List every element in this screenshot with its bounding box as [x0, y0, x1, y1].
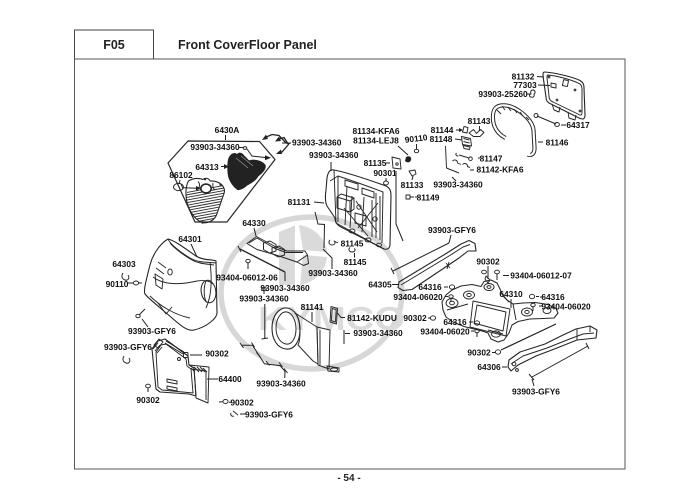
svg-text:93903-34360: 93903-34360 — [309, 150, 359, 160]
svg-text:93903-GFY6: 93903-GFY6 — [104, 342, 152, 352]
svg-text:81134-KFA6: 81134-KFA6 — [352, 126, 399, 136]
svg-text:93903-34360: 93903-34360 — [433, 180, 483, 190]
svg-text:64317: 64317 — [566, 120, 590, 130]
svg-text:93903-GFY6: 93903-GFY6 — [245, 410, 293, 420]
svg-text:93903-34360: 93903-34360 — [190, 142, 240, 152]
svg-text:64310: 64310 — [499, 289, 523, 299]
svg-text:93903-34360: 93903-34360 — [256, 379, 306, 389]
svg-text:81149: 81149 — [417, 193, 440, 203]
svg-text:81145: 81145 — [344, 257, 367, 267]
svg-text:86102: 86102 — [169, 170, 193, 180]
svg-text:90302: 90302 — [476, 257, 500, 267]
svg-text:Front CoverFloor Panel: Front CoverFloor Panel — [178, 38, 317, 52]
svg-text:F05: F05 — [103, 38, 125, 52]
svg-text:93404-06012-07: 93404-06012-07 — [510, 271, 572, 281]
svg-text:81134-LEJ8: 81134-LEJ8 — [353, 136, 399, 146]
svg-text:81147: 81147 — [480, 154, 503, 164]
svg-text:93903-GFY6: 93903-GFY6 — [428, 225, 476, 235]
svg-text:- 54 -: - 54 - — [337, 473, 360, 484]
svg-text:64301: 64301 — [178, 234, 202, 244]
svg-text:64316: 64316 — [443, 317, 467, 327]
svg-text:90302: 90302 — [205, 349, 229, 359]
svg-text:64316: 64316 — [541, 292, 565, 302]
svg-text:6430A: 6430A — [215, 125, 240, 135]
svg-text:81141: 81141 — [301, 302, 324, 312]
svg-text:64330: 64330 — [242, 218, 266, 228]
svg-text:93903-GFY6: 93903-GFY6 — [128, 326, 176, 336]
svg-text:81148: 81148 — [430, 134, 453, 144]
svg-text:93404-06012-06: 93404-06012-06 — [216, 273, 278, 283]
svg-text:90302: 90302 — [467, 348, 491, 358]
svg-text:64400: 64400 — [218, 374, 242, 384]
svg-text:81143: 81143 — [468, 116, 491, 126]
svg-text:90301: 90301 — [373, 168, 397, 178]
svg-text:81131: 81131 — [288, 197, 311, 207]
svg-text:93404-06020: 93404-06020 — [393, 292, 443, 302]
svg-text:81146: 81146 — [546, 138, 569, 148]
svg-text:81142-KFA6: 81142-KFA6 — [476, 165, 523, 175]
svg-text:93903-34360: 93903-34360 — [260, 283, 310, 293]
svg-text:81135: 81135 — [364, 158, 387, 168]
svg-text:64316: 64316 — [418, 282, 442, 292]
svg-text:93404-06020: 93404-06020 — [420, 327, 470, 337]
svg-text:93903-25260: 93903-25260 — [478, 89, 528, 99]
svg-text:64306: 64306 — [477, 362, 501, 372]
svg-text:64313: 64313 — [195, 162, 219, 172]
svg-text:64305: 64305 — [368, 280, 392, 290]
svg-text:93903-GFY6: 93903-GFY6 — [512, 387, 560, 397]
svg-text:93903-34360: 93903-34360 — [239, 294, 289, 304]
svg-text:81133: 81133 — [401, 180, 424, 190]
svg-text:81145: 81145 — [341, 239, 364, 249]
svg-text:93404-06020: 93404-06020 — [541, 302, 591, 312]
svg-text:90302: 90302 — [230, 398, 254, 408]
svg-text:90302: 90302 — [403, 313, 427, 323]
svg-text:90302: 90302 — [136, 395, 160, 405]
svg-text:93903-34360: 93903-34360 — [353, 328, 403, 338]
svg-text:90110: 90110 — [106, 279, 129, 289]
svg-text:93903-34360: 93903-34360 — [308, 268, 358, 278]
svg-text:81142-KUDU: 81142-KUDU — [347, 313, 397, 323]
svg-text:64303: 64303 — [112, 259, 136, 269]
svg-text:93903-34360: 93903-34360 — [292, 138, 342, 148]
